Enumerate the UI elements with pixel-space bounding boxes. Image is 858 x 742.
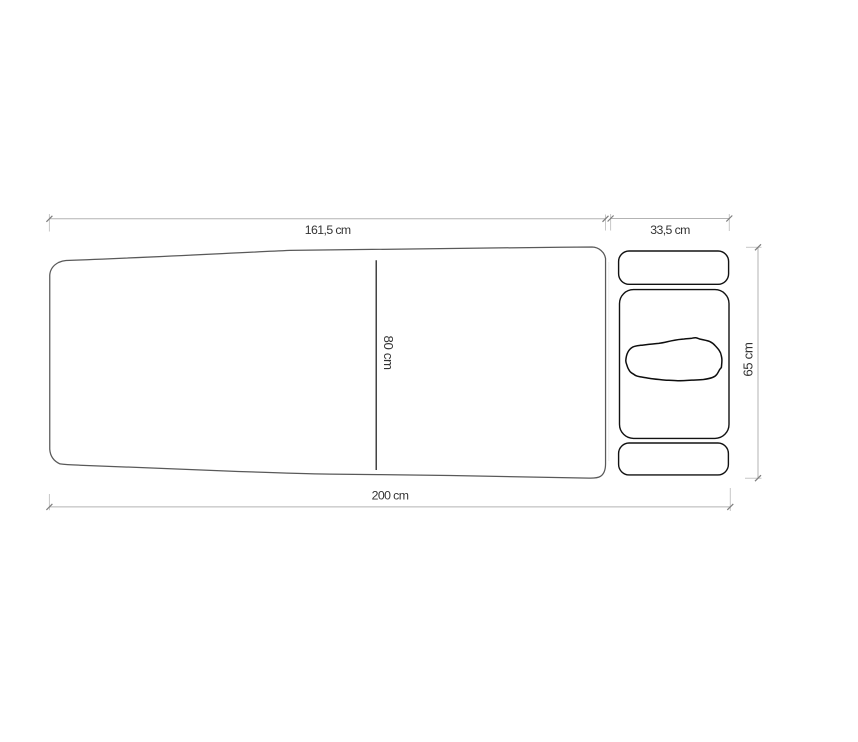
svg-text:65 cm: 65 cm — [741, 342, 756, 377]
svg-text:33,5 cm: 33,5 cm — [650, 223, 690, 237]
svg-text:161,5 cm: 161,5 cm — [305, 223, 351, 237]
svg-text:200 cm: 200 cm — [372, 489, 409, 503]
svg-text:80 cm: 80 cm — [381, 336, 396, 371]
